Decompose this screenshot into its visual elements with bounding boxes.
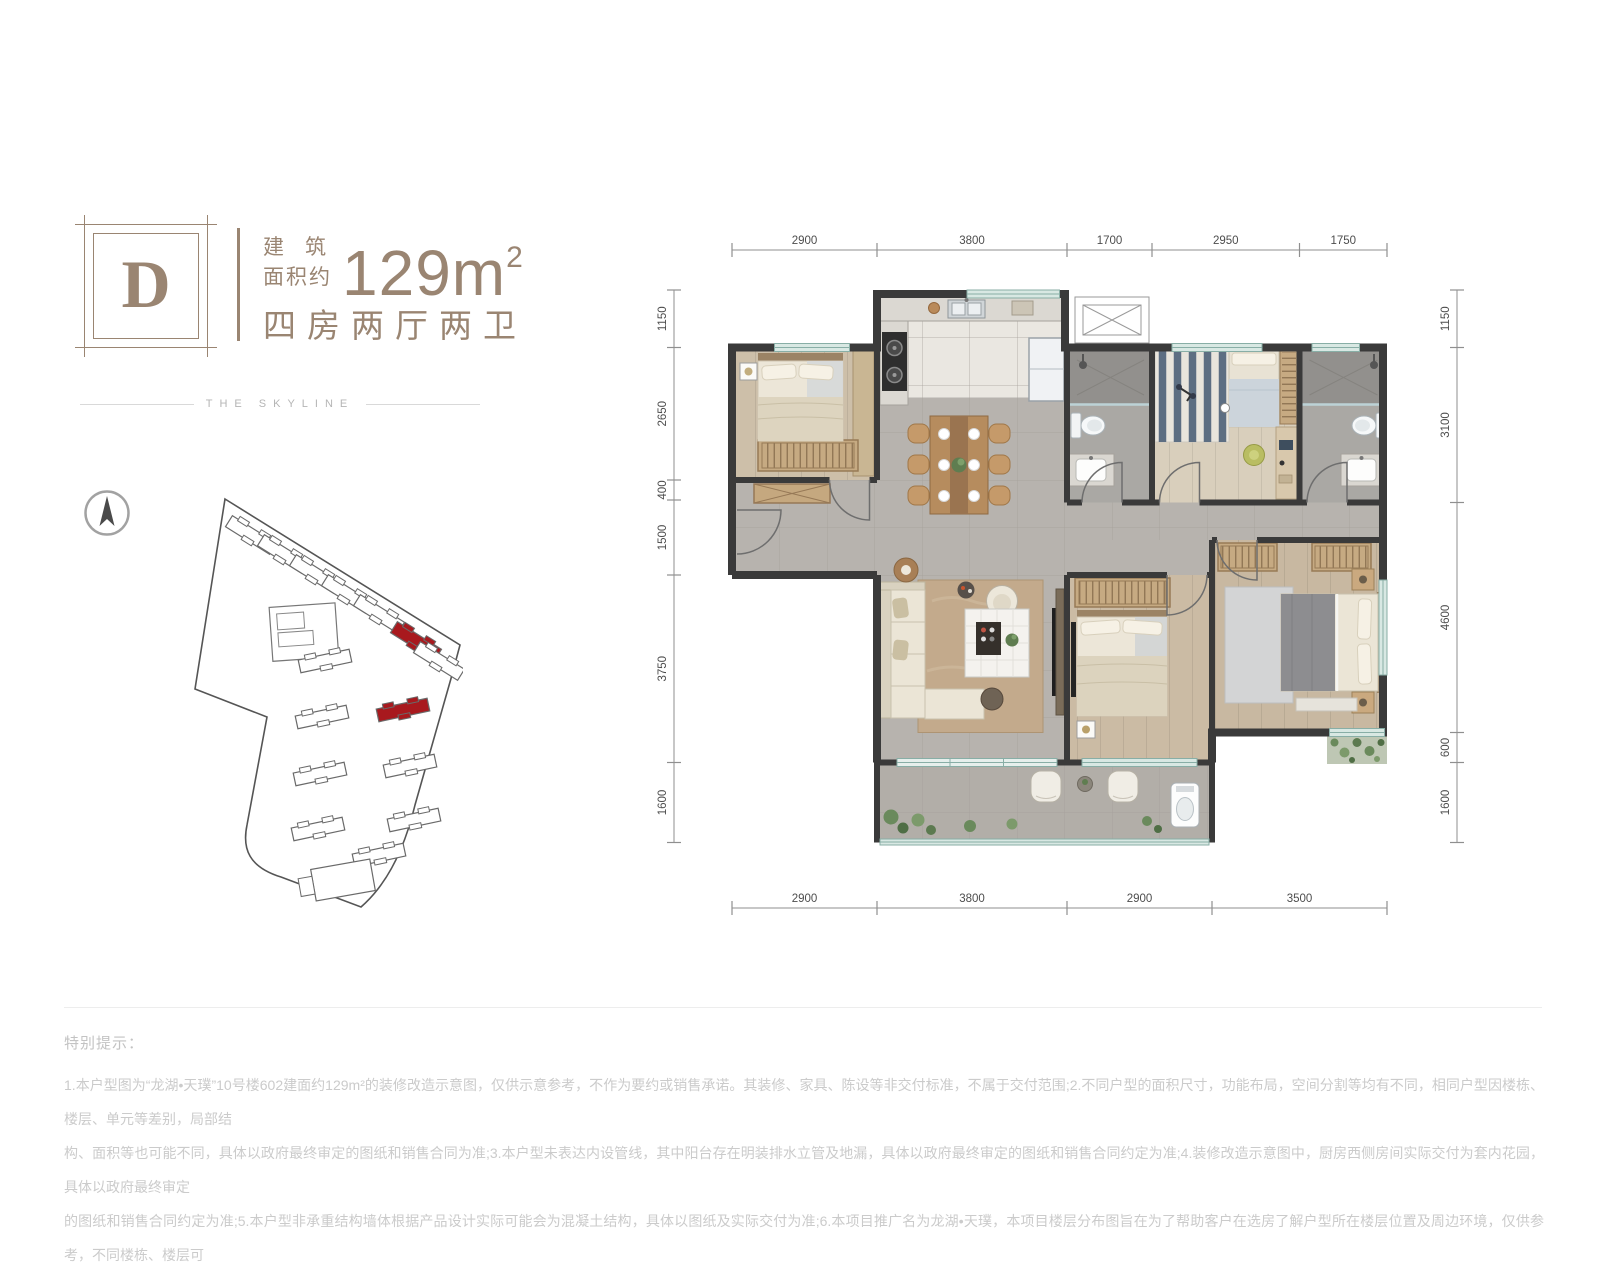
dim-label: 3750 <box>657 656 669 682</box>
shoe-cabinet <box>754 484 830 503</box>
bed <box>758 353 843 361</box>
dim-label: 1700 <box>1097 235 1123 247</box>
dim-label: 3800 <box>959 235 985 247</box>
unit-letter: D <box>84 224 208 348</box>
toilet <box>1071 413 1081 438</box>
divider-line <box>366 404 480 405</box>
tv <box>1052 608 1056 696</box>
area-caption-line2: 面积约 <box>263 263 332 293</box>
footer-divider <box>64 1007 1542 1008</box>
disclaimer-line: 的图纸和销售合同约定为准;5.本户型非承重结构墙体根据产品设计实际可能会为混凝土… <box>64 1204 1544 1272</box>
floor-plan: 2900380017002950175029003800290035001150… <box>632 200 1512 940</box>
header-divider <box>237 228 240 341</box>
dim-label: 2900 <box>1127 893 1153 905</box>
disclaimer-line: 构、面积等也可能不同，具体以政府最终审定的图纸和销售合同为准;3.本户型未表达内… <box>64 1136 1544 1204</box>
lounge-chair <box>1108 771 1138 802</box>
divider-line <box>80 404 194 405</box>
dim-label: 2950 <box>1213 235 1239 247</box>
dim-label: 3800 <box>959 893 985 905</box>
dim-label: 2900 <box>792 235 818 247</box>
parking-area <box>269 603 339 661</box>
living-room-furniture <box>880 558 1064 733</box>
dim-label: 2650 <box>657 401 669 427</box>
sofa <box>880 590 891 718</box>
bedroom-1-furniture <box>740 351 874 476</box>
dim-label: 1750 <box>1330 235 1356 247</box>
area-block: 建 筑 面积约 129m2 <box>263 226 524 305</box>
disclaimer-line: 能存在差异;本资料发布时间为2022年4月，本公司保留对宣传册修改的权利，敬请留… <box>64 1272 1544 1280</box>
dim-label: 4600 <box>1440 605 1452 631</box>
dim-label: 1150 <box>1440 306 1452 331</box>
dim-label: 3100 <box>1440 412 1452 438</box>
area-value: 129m2 <box>342 226 524 305</box>
bed <box>1077 610 1167 617</box>
brand-divider: THE SKYLINE <box>80 398 480 410</box>
dining-furniture <box>908 416 1010 514</box>
tv <box>1071 622 1076 697</box>
lounge-chair <box>1031 771 1061 802</box>
desk <box>1276 427 1298 499</box>
disclaimer-text: 1.本户型图为“龙湖•天璞”10号楼602建面约129m²的装修改造示意图，仅供… <box>64 1068 1544 1280</box>
layout-description: 四房两厅两卫 <box>263 299 527 347</box>
disclaimer-title: 特别提示： <box>64 1032 144 1053</box>
bedroom-3-furniture <box>1071 578 1170 738</box>
compass-north-icon <box>83 489 131 537</box>
ac-platform <box>1075 297 1149 343</box>
dim-label: 1150 <box>657 306 669 331</box>
tv-console <box>1056 589 1064 715</box>
dim-label: 1600 <box>1440 790 1452 816</box>
area-caption: 建 筑 面积约 <box>263 233 332 293</box>
brand-text: THE SKYLINE <box>206 398 355 410</box>
dim-label: 2900 <box>792 893 818 905</box>
dim-label: 400 <box>657 480 669 499</box>
dim-label: 1600 <box>657 790 669 816</box>
unit-letter-frame: D <box>84 224 208 348</box>
dim-label: 1500 <box>657 525 669 551</box>
bench <box>1296 698 1357 711</box>
brochure-page: D 建 筑 面积约 129m2 四房两厅两卫 THE SKYLINE <box>0 0 1600 1280</box>
site-plan <box>183 483 463 913</box>
dim-label: 600 <box>1440 738 1452 757</box>
area-caption-line1: 建 筑 <box>263 233 332 263</box>
dim-label: 3500 <box>1287 893 1313 905</box>
disclaimer-line: 1.本户型图为“龙湖•天璞”10号楼602建面约129m²的装修改造示意图，仅供… <box>64 1068 1544 1136</box>
